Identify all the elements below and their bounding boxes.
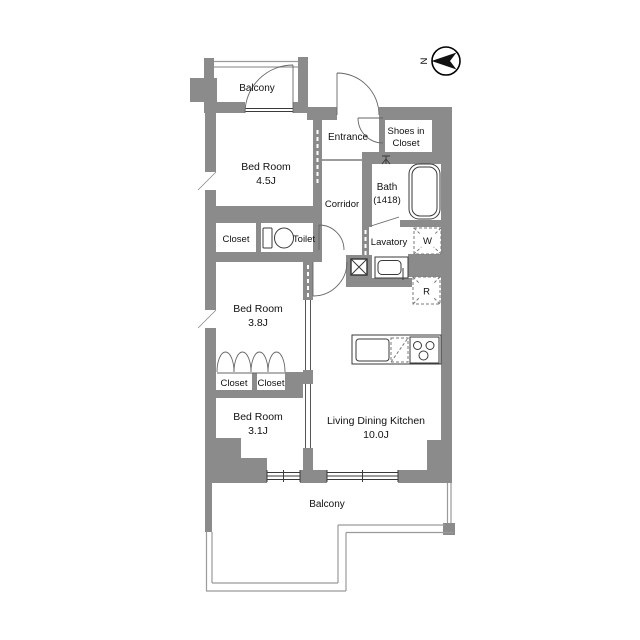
wall-segment xyxy=(252,373,257,390)
wall-segment xyxy=(303,448,313,470)
pipe-space-box xyxy=(351,259,367,275)
wall-segment xyxy=(362,164,372,227)
wall-segment xyxy=(379,120,385,152)
compass: N xyxy=(419,47,460,75)
bedroom31-label: Bed Room xyxy=(233,411,283,423)
bedroom38-size: 3.8J xyxy=(248,317,268,329)
balcony-bottom-label: Balcony xyxy=(309,499,345,510)
wall-segment xyxy=(205,206,322,223)
compass-north-label: N xyxy=(419,57,430,64)
closet-north-label: Closet xyxy=(223,234,250,245)
wall-segment xyxy=(408,254,441,277)
wall-segment xyxy=(400,220,452,227)
wall-segment xyxy=(441,120,452,440)
ldk-door-swing xyxy=(313,262,347,296)
toilet-fixture xyxy=(263,228,294,248)
shoes-closet-line2: Closet xyxy=(393,138,420,149)
ldk-window xyxy=(327,470,398,482)
room-labels: Balcony Bed Room 4.5J Entrance Shoes in … xyxy=(221,83,432,510)
wall-segment xyxy=(303,370,313,384)
bedroom31-ldk-partition xyxy=(306,384,311,448)
bath-label: Bath xyxy=(377,182,398,193)
kitchen-counter xyxy=(352,335,441,364)
top-balcony-railing xyxy=(214,62,298,68)
wall-segment xyxy=(205,390,303,398)
entrance-label: Entrance xyxy=(328,132,368,143)
wall-segment xyxy=(427,440,452,483)
wall-segment xyxy=(432,120,441,152)
wall-segment xyxy=(293,102,308,113)
wall-segment xyxy=(317,223,322,252)
stove xyxy=(410,337,439,363)
closet-bifold-doors xyxy=(217,352,285,373)
bedroom38-label: Bed Room xyxy=(233,303,283,315)
wall-segment xyxy=(205,438,241,458)
shoes-closet-line1: Shoes in xyxy=(388,126,425,137)
wall-segment xyxy=(398,470,427,483)
kitchen-sink xyxy=(356,339,389,361)
lavatory-label: Lavatory xyxy=(371,237,408,248)
bath-folding-door xyxy=(371,217,399,226)
wall-segment xyxy=(205,95,216,483)
closet-east-label: Closet xyxy=(258,378,285,389)
floor-plan-svg: N Balcony Bed Room 4.5J Entrance Shoes i… xyxy=(0,0,640,640)
wall-segment xyxy=(256,223,261,252)
balcony-window xyxy=(245,109,293,112)
washer-label: W xyxy=(423,236,432,247)
wall-segment xyxy=(362,152,452,164)
bedroom38-ldk-partition xyxy=(306,300,311,370)
wall-segment xyxy=(205,470,267,483)
bedroom45-size: 4.5J xyxy=(256,175,276,187)
balcony-top-label: Balcony xyxy=(239,83,275,94)
wall-segment xyxy=(300,470,327,483)
wall-segment xyxy=(205,458,267,470)
toilet-label: Toilet xyxy=(293,234,316,245)
wall-segment xyxy=(205,252,313,262)
bathtub xyxy=(409,164,440,219)
refrigerator-label: R xyxy=(423,287,430,298)
wall-segment xyxy=(379,107,452,120)
toilet-door-swing xyxy=(319,225,344,250)
closet-west-label: Closet xyxy=(221,378,248,389)
wall-segment xyxy=(204,102,245,113)
wall-segment xyxy=(205,483,212,532)
bedroom31-window xyxy=(267,470,300,482)
wash-basin xyxy=(375,257,408,280)
ldk-label: Living Dining Kitchen xyxy=(327,415,425,427)
wall-segment xyxy=(346,278,412,287)
corridor-label: Corridor xyxy=(325,199,359,210)
bedroom31-size: 3.1J xyxy=(248,425,268,437)
floor-plan-image: N Balcony Bed Room 4.5J Entrance Shoes i… xyxy=(0,0,640,640)
bath-size: (1418) xyxy=(373,195,400,206)
entrance-door-swing xyxy=(337,73,379,115)
bedroom45-label: Bed Room xyxy=(241,161,291,173)
ldk-size: 10.0J xyxy=(363,429,389,441)
